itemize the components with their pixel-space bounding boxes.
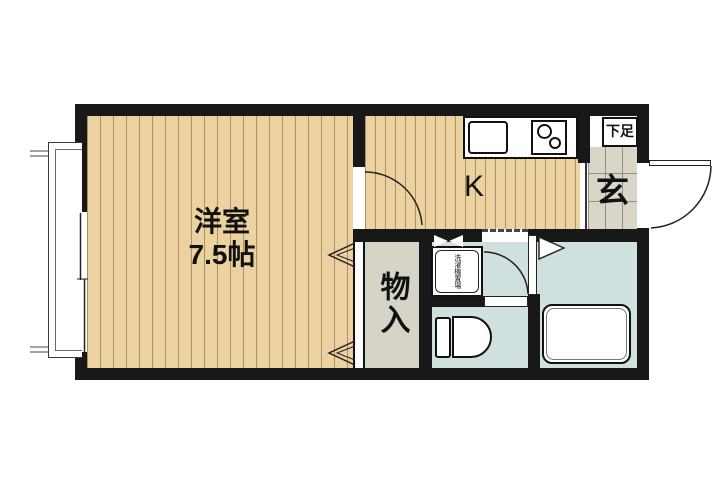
western-room-size: 7.5帖 bbox=[122, 238, 322, 271]
stove-burner-small bbox=[549, 137, 561, 149]
kitchen-door-opening bbox=[353, 167, 365, 229]
balcony-rail-inner bbox=[55, 149, 82, 351]
toilet-tank bbox=[435, 317, 451, 358]
western-room-name: 洋室 bbox=[122, 205, 322, 238]
closet-door-track bbox=[353, 242, 365, 368]
washing-machine-label: 洗濯機置場 bbox=[453, 254, 461, 289]
wall-room-kitchen bbox=[353, 104, 365, 167]
wall-right-lower bbox=[637, 228, 649, 380]
shoe-cabinet-label: 下足 bbox=[606, 124, 634, 139]
storage-label-text: 物入 bbox=[376, 271, 409, 337]
storage-label: 物入 bbox=[374, 264, 410, 344]
wall-under-washer bbox=[430, 296, 484, 307]
sink bbox=[468, 121, 508, 154]
western-room-label: 洋室 7.5帖 bbox=[122, 205, 322, 271]
wall-bottom bbox=[75, 368, 649, 380]
bathtub-inner-line bbox=[546, 308, 627, 360]
kitchen-label: K bbox=[464, 170, 484, 203]
bath-door-leaf bbox=[528, 235, 537, 295]
wall-bath-left bbox=[528, 294, 540, 368]
wall-right-upper bbox=[637, 104, 649, 163]
wall-mid-left bbox=[353, 229, 482, 242]
washroom-door-threshold bbox=[482, 229, 528, 242]
floor-plan: 下足 洗濯機置場 洋室 7.5帖 K 玄 物入 bbox=[0, 0, 720, 480]
washing-machine: 洗濯機置場 bbox=[435, 250, 479, 293]
wall-counter-stub bbox=[578, 116, 590, 163]
entry-door-arc bbox=[651, 166, 711, 228]
toilet-partition-sill bbox=[484, 296, 528, 307]
entrance-label: 玄 bbox=[588, 170, 637, 212]
entry-door-opening bbox=[637, 163, 649, 228]
wall-mid-right bbox=[528, 229, 649, 242]
shoe-cabinet: 下足 bbox=[602, 117, 638, 147]
stove-burner-large bbox=[537, 124, 552, 139]
toilet-bowl bbox=[452, 316, 492, 358]
entry-door-leaf bbox=[649, 160, 711, 166]
entrance-label-text: 玄 bbox=[596, 173, 629, 209]
